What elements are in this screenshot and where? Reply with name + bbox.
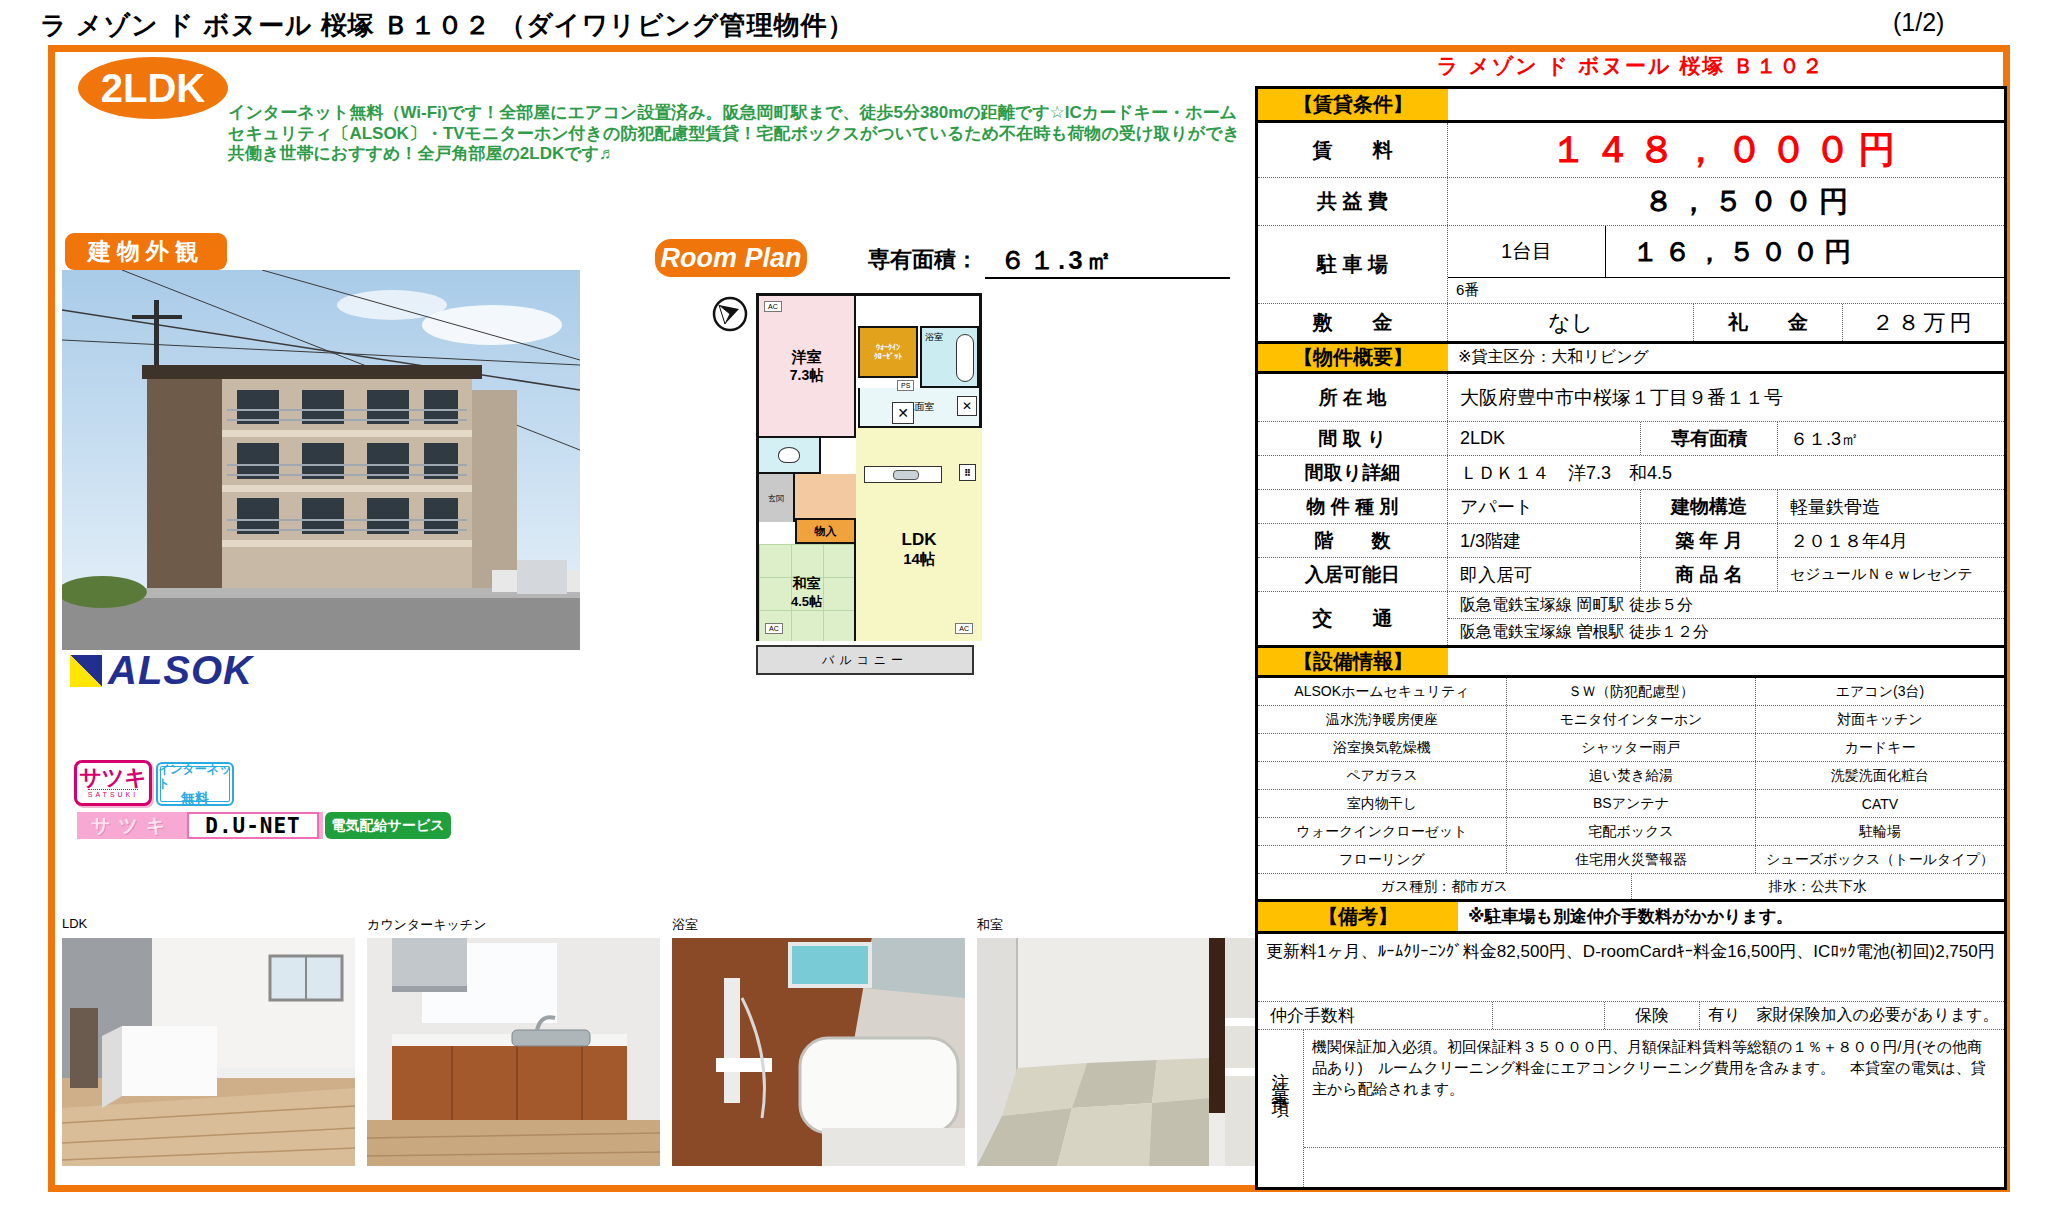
floorplan-hallway [795, 474, 856, 518]
alsok-logo-mark-icon [70, 655, 102, 687]
bath-label: 浴室 [925, 331, 943, 344]
stove-icon: ⠿ [959, 464, 976, 481]
layout-row: 間 取 り 2LDK 専有面積 ６１.3㎡ [1258, 422, 2004, 456]
equipment-row: ウォークインクローゼット 宅配ボックス 駐輪場 [1258, 818, 2004, 846]
type-row: 物 件 種 別 アパート 建物構造 軽量鉄骨造 [1258, 490, 2004, 524]
floors-label: 階 数 [1258, 524, 1448, 557]
floorplan-entrance: 玄関 [759, 474, 795, 522]
equipment-item: エアコン(3台) [1756, 678, 2004, 705]
western-room-label: 洋室 [792, 348, 822, 367]
parking-row: 駐 車 場 1台目 １６，５００円 6番 [1258, 226, 2004, 304]
layout-detail-label: 間取り詳細 [1258, 456, 1448, 489]
ac-label-1: AC [764, 301, 782, 312]
floorplan-storage: 物入 [795, 518, 856, 544]
ldk-label: LDK [902, 530, 937, 550]
rental-section-row: 【賃貸条件】 [1258, 89, 2004, 123]
balcony-label: バルコニー [822, 652, 908, 669]
equipment-row: 浴室換気乾燥機 シャッター雨戸 カードキー [1258, 734, 2004, 762]
ldk-size: 14帖 [903, 550, 935, 569]
satsuki-logo: サツキ SATSUKI [74, 760, 152, 806]
common-fee-value: ８，５００円 [1448, 178, 2004, 225]
layout-label: 間 取 り [1258, 422, 1448, 455]
rental-section-header: 【賃貸条件】 [1258, 89, 1448, 120]
floorplan-washroom: 洗面室 ✕ [858, 388, 979, 428]
equipment-section-header: 【設備情報】 [1258, 648, 1448, 675]
area-underline [985, 277, 1230, 279]
caution-text: 機関保証加入必須。初回保証料３５０００円、月額保証料賃料等総額の１％＋８００円/… [1304, 1030, 2004, 1148]
equipment-row: ALSOKホームセキュリティ ＳＷ（防犯配慮型） エアコン(3台) [1258, 678, 2004, 706]
satsuki-logo-subtext: SATSUKI [88, 789, 138, 799]
sink-icon [893, 470, 919, 480]
equipment-item: フローリング [1258, 846, 1507, 873]
page-title: ラ メゾン ド ボヌール 桜塚 Ｂ１０２ （ダイワリビング管理物件） [40, 8, 854, 43]
alsok-logo-text: ALSOK [108, 648, 253, 693]
equipment-item: カードキー [1756, 734, 2004, 761]
wic-label-1: ｳｫｰｸｲﾝ [876, 343, 900, 352]
layout-type-badge: 2LDK [78, 57, 228, 119]
equipment-item: 対面キッチン [1756, 706, 2004, 733]
property-flyer-page: { "colors": { "accent_orange":"#F0750A",… [0, 0, 2056, 1217]
kitchen-counter-icon [864, 466, 942, 483]
equipment-row: ペアガラス 追い焚き給湯 洗髪洗面化粧台 [1258, 762, 2004, 790]
equipment-item: 浴室換気乾燥機 [1258, 734, 1507, 761]
floor-plan-body: 洋室 7.3帖 AC ｳｫｰｸｲﾝ ｸﾛｰｾﾞｯﾄ 浴室 洗面室 ✕ PS 玄関 [756, 293, 982, 641]
key-money-value: ２８万円 [1843, 304, 2004, 341]
key-money-label: 礼 金 [1693, 304, 1843, 341]
internet-free-badge: インターネット 無料 [156, 762, 234, 806]
equipment-item: 駐輪場 [1756, 818, 2004, 845]
access-line2: 阪急電鉄宝塚線 曽根駅 徒歩１２分 [1448, 619, 2004, 645]
equipment-item: ＳＷ（防犯配慮型） [1507, 678, 1756, 705]
structure-label: 建物構造 [1640, 490, 1778, 523]
building-exterior-photo [62, 270, 580, 654]
equipment-item: 宅配ボックス [1507, 818, 1756, 845]
overview-section-header: 【物件概要】 [1258, 344, 1448, 371]
ac-label-2: AC [765, 623, 783, 634]
internet-free-line2: 無料 [181, 790, 209, 806]
satsuki-logo-text: サツキ [79, 767, 147, 789]
layout-detail-value: ＬＤＫ１４ 洋7.3 和4.5 [1448, 456, 2004, 489]
agent-fee-row: 仲介手数料 保険 有り 家財保険加入の必要があります。 [1258, 1002, 2004, 1030]
toilet-icon [778, 447, 800, 463]
overview-section-row: 【物件概要】 ※貸主区分：大和リビング [1258, 344, 2004, 374]
equipment-section-row: 【設備情報】 [1258, 648, 2004, 678]
renewal-row: 更新料1ヶ月、ﾙｰﾑｸﾘｰﾆﾝｸﾞ料金82,500円、D-roomCardｷｰ料… [1258, 934, 2004, 1002]
parking-unit: 1台目 [1448, 226, 1606, 277]
photo-label-bath: 浴室 [672, 916, 698, 934]
remarks-note: ※駐車場も別途仲介手数料がかかります。 [1458, 902, 1793, 931]
floors-value: 1/3階建 [1448, 524, 1640, 557]
location-value: 大阪府豊中市中桜塚１丁目９番１１号 [1448, 374, 2004, 421]
floor-plan: 洋室 7.3帖 AC ｳｫｰｸｲﾝ ｸﾛｰｾﾞｯﾄ 浴室 洗面室 ✕ PS 玄関 [756, 293, 982, 675]
brand-label: 商 品 名 [1640, 558, 1778, 591]
floorplan-balcony: バルコニー [756, 645, 974, 675]
area2-label: 専有面積 [1640, 422, 1778, 455]
photo-ldk [62, 938, 355, 1166]
deposit-row: 敷 金 なし 礼 金 ２８万円 [1258, 304, 2004, 344]
japanese-room-label: 和室 [793, 575, 821, 593]
wic-label-2: ｸﾛｰｾﾞｯﾄ [874, 352, 902, 361]
ps-label: PS [897, 380, 914, 391]
equipment-row: フローリング 住宅用火災警報器 シューズボックス（トールタイプ） [1258, 846, 2004, 874]
photo-counter-kitchen [367, 938, 660, 1166]
remarks-section-header: 【備考】 [1258, 902, 1458, 931]
room-plan-label: Room Plan [655, 239, 807, 277]
brand-value: セジュールＮｅｗレセンテ [1778, 558, 2004, 591]
caution-label: 注意事項 [1269, 1058, 1293, 1098]
area-value: ６１.3㎡ [1000, 243, 1115, 278]
property-name-header: ラ メゾン ド ボヌール 桜塚 Ｂ１０２ [1255, 52, 2007, 80]
deposit-label: 敷 金 [1258, 304, 1448, 341]
agent-fee-label: 仲介手数料 [1258, 1002, 1493, 1029]
building-exterior-illustration [62, 270, 580, 650]
equipment-item: ALSOKホームセキュリティ [1258, 678, 1507, 705]
equipment-row: 温水洗浄暖房便座 モニタ付インターホン 対面キッチン [1258, 706, 2004, 734]
caution-row: 注意事項 機関保証加入必須。初回保証料３５０００円、月額保証料賃料等総額の１％＋… [1258, 1030, 2004, 1187]
photo-label-kitchen: カウンターキッチン [367, 916, 486, 934]
layout-detail-row: 間取り詳細 ＬＤＫ１４ 洋7.3 和4.5 [1258, 456, 2004, 490]
insurance-value: 有り 家財保険加入の必要があります。 [1700, 1002, 2004, 1029]
equipment-item: ペアガラス [1258, 762, 1507, 789]
photo-bathroom [672, 938, 965, 1166]
type-label: 物 件 種 別 [1258, 490, 1448, 523]
movein-row: 入居可能日 即入居可 商 品 名 セジュールＮｅｗレセンテ [1258, 558, 2004, 592]
movein-value: 即入居可 [1448, 558, 1640, 591]
parking-label: 駐 車 場 [1258, 226, 1448, 303]
insurance-label: 保険 [1605, 1002, 1700, 1029]
equipment-item: CATV [1756, 790, 2004, 817]
property-data-table: 【賃貸条件】 賃 料 １４８，０００円 共 益 費 ８，５００円 駐 車 場 1… [1255, 86, 2007, 1190]
rent-value: １４８，０００円 [1448, 123, 2004, 177]
satsuki-banner-text: サツキ [77, 813, 173, 839]
hob-icon: ✕ [892, 402, 914, 424]
photo-label-japanese: 和室 [977, 916, 1003, 934]
bathtub-icon [956, 334, 974, 382]
gas-drain-row: ガス種別：都市ガス 排水：公共下水 [1258, 874, 2004, 902]
drain-type: 排水：公共下水 [1632, 874, 2005, 899]
washer-icon: ✕ [957, 396, 977, 416]
floorplan-bath: 浴室 [920, 326, 979, 388]
owner-note: ※貸主区分：大和リビング [1448, 344, 1649, 371]
parking-number: 6番 [1448, 278, 2004, 303]
japanese-room-size: 4.5帖 [791, 593, 822, 611]
common-fee-row: 共 益 費 ８，５００円 [1258, 178, 2004, 226]
equipment-item: 洗髪洗面化粧台 [1756, 762, 2004, 789]
exterior-section-label: 建物外観 [65, 233, 227, 270]
remarks-section-row: 【備考】 ※駐車場も別途仲介手数料がかかります。 [1258, 902, 2004, 934]
area-label: 専有面積： [868, 245, 978, 275]
caution-empty [1304, 1148, 2004, 1187]
internet-free-line1: インターネット [158, 762, 232, 790]
photo-japanese-room [977, 938, 1255, 1166]
equipment-item: 温水洗浄暖房便座 [1258, 706, 1507, 733]
ac-label-3: AC [955, 623, 973, 634]
rent-row: 賃 料 １４８，０００円 [1258, 123, 2004, 178]
location-label: 所 在 地 [1258, 374, 1448, 421]
floorplan-ldk: ⠿ ✕ LDK 14帖 [856, 428, 982, 641]
storage-label: 物入 [815, 524, 837, 539]
access-row: 交 通 阪急電鉄宝塚線 岡町駅 徒歩５分 阪急電鉄宝塚線 曽根駅 徒歩１２分 [1258, 592, 2004, 648]
layout-value: 2LDK [1448, 422, 1640, 455]
parking-value: １６，５００円 [1606, 226, 2004, 277]
equipment-item: 追い焚き給湯 [1507, 762, 1756, 789]
location-row: 所 在 地 大阪府豊中市中桜塚１丁目９番１１号 [1258, 374, 2004, 422]
rent-label: 賃 料 [1258, 123, 1448, 177]
area2-value: ６１.3㎡ [1778, 422, 2004, 455]
built-label: 築 年 月 [1640, 524, 1778, 557]
built-value: ２０１８年4月 [1778, 524, 2004, 557]
deposit-value: なし [1448, 304, 1693, 341]
equipment-item: シャッター雨戸 [1507, 734, 1756, 761]
page-number: (1/2) [1893, 8, 1944, 37]
equipment-item: シューズボックス（トールタイプ） [1756, 846, 2004, 873]
access-label: 交 通 [1258, 592, 1448, 645]
equipment-item: モニタ付インターホン [1507, 706, 1756, 733]
denki-service-badge: 電気配給サービス [325, 812, 451, 839]
equipment-item: ウォークインクローゼット [1258, 818, 1507, 845]
entrance-label: 玄関 [768, 493, 784, 504]
renewal-text: 更新料1ヶ月、ﾙｰﾑｸﾘｰﾆﾝｸﾞ料金82,500円、D-roomCardｷｰ料… [1258, 934, 2003, 1001]
equipment-row: 室内物干し BSアンテナ CATV [1258, 790, 2004, 818]
type-value: アパート [1448, 490, 1640, 523]
alsok-logo: ALSOK [70, 648, 253, 693]
photo-label-ldk: LDK [62, 916, 87, 931]
movein-label: 入居可能日 [1258, 558, 1448, 591]
common-fee-label: 共 益 費 [1258, 178, 1448, 225]
compass-icon [712, 296, 748, 332]
agent-fee-value [1493, 1002, 1605, 1029]
promo-description: インターネット無料（Wi-Fi)です！全部屋にエアコン設置済み。阪急岡町駅まで、… [228, 103, 1250, 165]
dunet-logo: D.U-NET [187, 812, 319, 839]
floorplan-western-room: 洋室 7.3帖 [759, 296, 856, 438]
equipment-item: BSアンテナ [1507, 790, 1756, 817]
gas-type: ガス種別：都市ガス [1258, 874, 1632, 899]
access-line1: 阪急電鉄宝塚線 岡町駅 徒歩５分 [1448, 592, 2004, 619]
structure-value: 軽量鉄骨造 [1778, 490, 2004, 523]
caution-label-cell: 注意事項 [1258, 1030, 1304, 1187]
floorplan-toilet [759, 438, 821, 474]
equipment-item: 室内物干し [1258, 790, 1507, 817]
equipment-item: 住宅用火災警報器 [1507, 846, 1756, 873]
western-room-size: 7.3帖 [790, 367, 823, 385]
floorplan-wic: ｳｫｰｸｲﾝ ｸﾛｰｾﾞｯﾄ [858, 326, 918, 378]
floors-row: 階 数 1/3階建 築 年 月 ２０１８年4月 [1258, 524, 2004, 558]
